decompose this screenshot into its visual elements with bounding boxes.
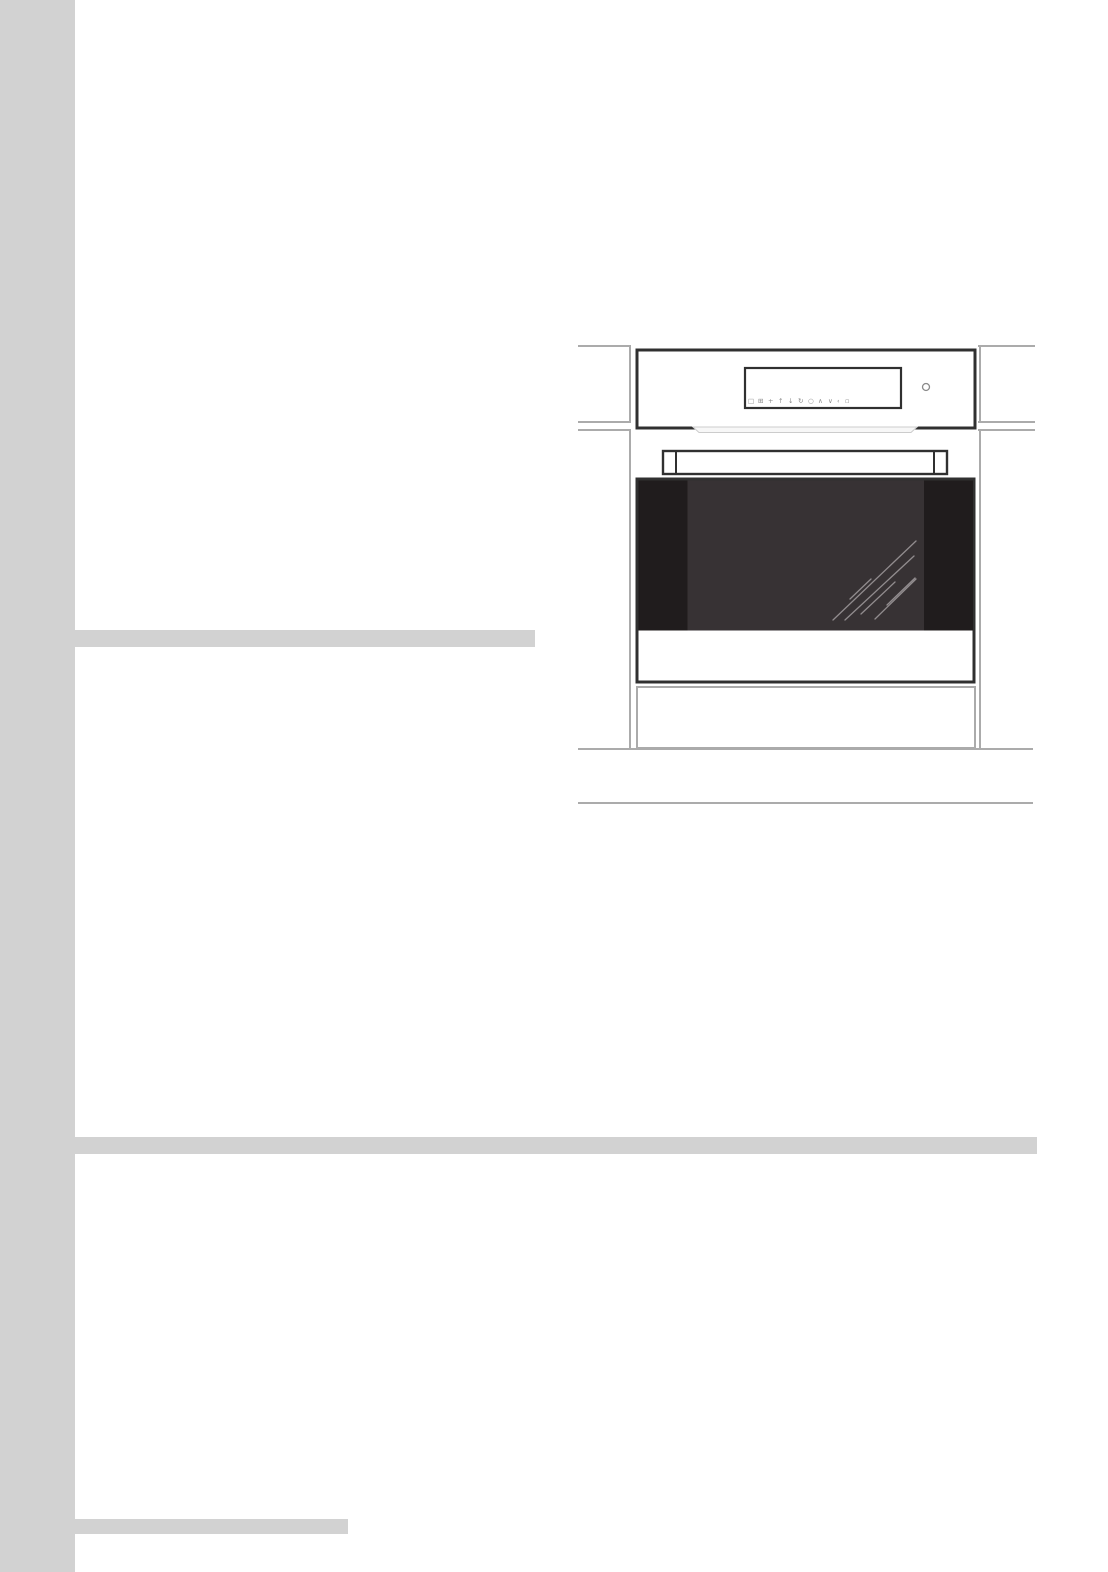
door-glass: [639, 481, 974, 631]
stop-icon: ▫: [845, 397, 849, 405]
arrow-up-icon: ↑: [778, 397, 783, 405]
section-divider-bar-2: [75, 1137, 1037, 1154]
vent-slot: [693, 427, 917, 433]
door-handle: [663, 451, 947, 474]
left-margin-band: [0, 0, 75, 1572]
oven-door: [637, 479, 974, 682]
plus-icon: +: [768, 397, 773, 405]
oven-installation-diagram: □ ⊞ + ↑ ↓ ↻ ○ ∧ ∨ ‹ ▫: [578, 343, 1035, 805]
section-divider-bar-1: [75, 630, 535, 647]
display-icon: □: [748, 397, 754, 405]
section-divider-bar-3: [75, 1519, 348, 1534]
plinth-drawer-panel: [637, 687, 975, 748]
back-icon: ‹: [837, 397, 840, 405]
chevron-up-icon: ∧: [818, 397, 823, 405]
document-page: □ ⊞ + ↑ ↓ ↻ ○ ∧ ∨ ‹ ▫: [0, 0, 1108, 1572]
timer-icon: ○: [808, 397, 814, 405]
grill-icon: ⊞: [758, 397, 763, 405]
handle-bar: [663, 451, 947, 474]
oven-illustration: □ ⊞ + ↑ ↓ ↻ ○ ∧ ∨ ‹ ▫: [578, 343, 1035, 805]
arrow-down-icon: ↓: [788, 397, 793, 405]
door-glass-left-edge: [639, 481, 688, 631]
rotate-icon: ↻: [798, 397, 803, 405]
chevron-down-icon: ∨: [828, 397, 833, 405]
door-glass-right-edge: [924, 481, 973, 631]
